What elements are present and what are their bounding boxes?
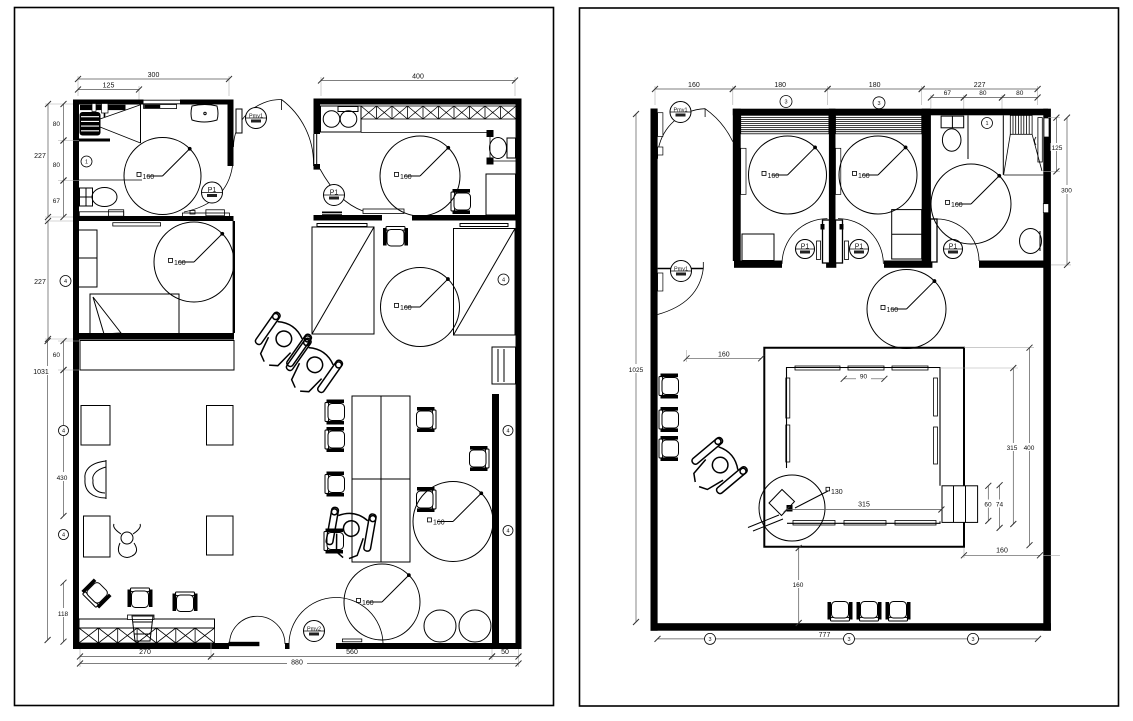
svg-text:300: 300 [148,72,160,79]
svg-text:118: 118 [58,611,69,618]
svg-text:P1: P1 [801,244,810,251]
svg-text:Pmv1: Pmv1 [249,114,263,120]
svg-text:Pmv1: Pmv1 [673,108,687,114]
svg-text:400: 400 [1024,445,1035,452]
svg-text:160: 160 [143,174,155,181]
svg-text:227: 227 [34,153,46,160]
svg-text:90: 90 [860,374,868,381]
svg-text:3: 3 [708,637,711,643]
svg-text:4: 4 [64,279,67,285]
svg-text:130: 130 [831,489,843,496]
svg-text:777: 777 [819,632,831,639]
svg-text:125: 125 [103,83,115,90]
svg-text:880: 880 [291,660,303,667]
svg-text:160: 160 [362,600,374,607]
svg-text:60: 60 [984,502,992,509]
svg-text:227: 227 [34,279,46,286]
svg-text:4: 4 [62,429,65,435]
svg-text:160: 160 [718,351,730,358]
svg-text:1025: 1025 [629,367,644,374]
svg-text:1: 1 [985,121,988,127]
svg-text:160: 160 [400,305,412,312]
svg-text:180: 180 [774,82,786,89]
svg-text:60: 60 [53,352,61,359]
svg-text:80: 80 [53,162,61,169]
svg-text:180: 180 [869,82,881,89]
svg-text:4: 4 [506,429,509,435]
svg-text:270: 270 [139,649,151,656]
svg-text:300: 300 [1061,188,1072,195]
svg-text:430: 430 [57,475,68,482]
svg-text:Pmv1: Pmv1 [674,267,688,273]
svg-text:400: 400 [412,74,424,81]
svg-text:3: 3 [847,637,850,643]
svg-text:3: 3 [784,100,787,106]
svg-text:160: 160 [174,260,186,267]
svg-text:227: 227 [974,82,986,89]
svg-text:P1: P1 [330,190,339,197]
svg-text:50: 50 [501,649,509,656]
svg-text:315: 315 [1007,445,1018,452]
svg-text:160: 160 [887,307,899,314]
svg-text:1: 1 [85,160,88,166]
svg-text:160: 160 [688,82,700,89]
svg-text:P1: P1 [208,187,217,194]
svg-text:160: 160 [951,202,963,209]
svg-text:67: 67 [53,198,61,205]
svg-text:4: 4 [62,533,65,539]
svg-text:160: 160 [996,548,1008,555]
svg-text:3: 3 [877,101,880,107]
svg-text:80: 80 [979,90,987,97]
svg-text:Pmv2: Pmv2 [307,627,321,633]
svg-text:560: 560 [346,649,358,656]
svg-text:3: 3 [971,637,974,643]
svg-text:160: 160 [400,174,412,181]
svg-text:160: 160 [858,173,870,180]
svg-text:160: 160 [793,582,804,589]
svg-text:1031: 1031 [33,369,49,376]
svg-text:P1: P1 [949,244,958,251]
svg-text:160: 160 [433,520,445,527]
svg-text:80: 80 [1016,90,1024,97]
svg-text:315: 315 [858,502,870,509]
svg-text:67: 67 [944,90,952,97]
svg-text:4: 4 [506,529,509,535]
svg-text:160: 160 [768,173,780,180]
svg-text:P1: P1 [855,244,864,251]
svg-text:80: 80 [53,121,61,128]
svg-text:74: 74 [996,502,1004,509]
svg-text:125: 125 [1052,145,1063,152]
svg-text:4: 4 [502,278,505,284]
